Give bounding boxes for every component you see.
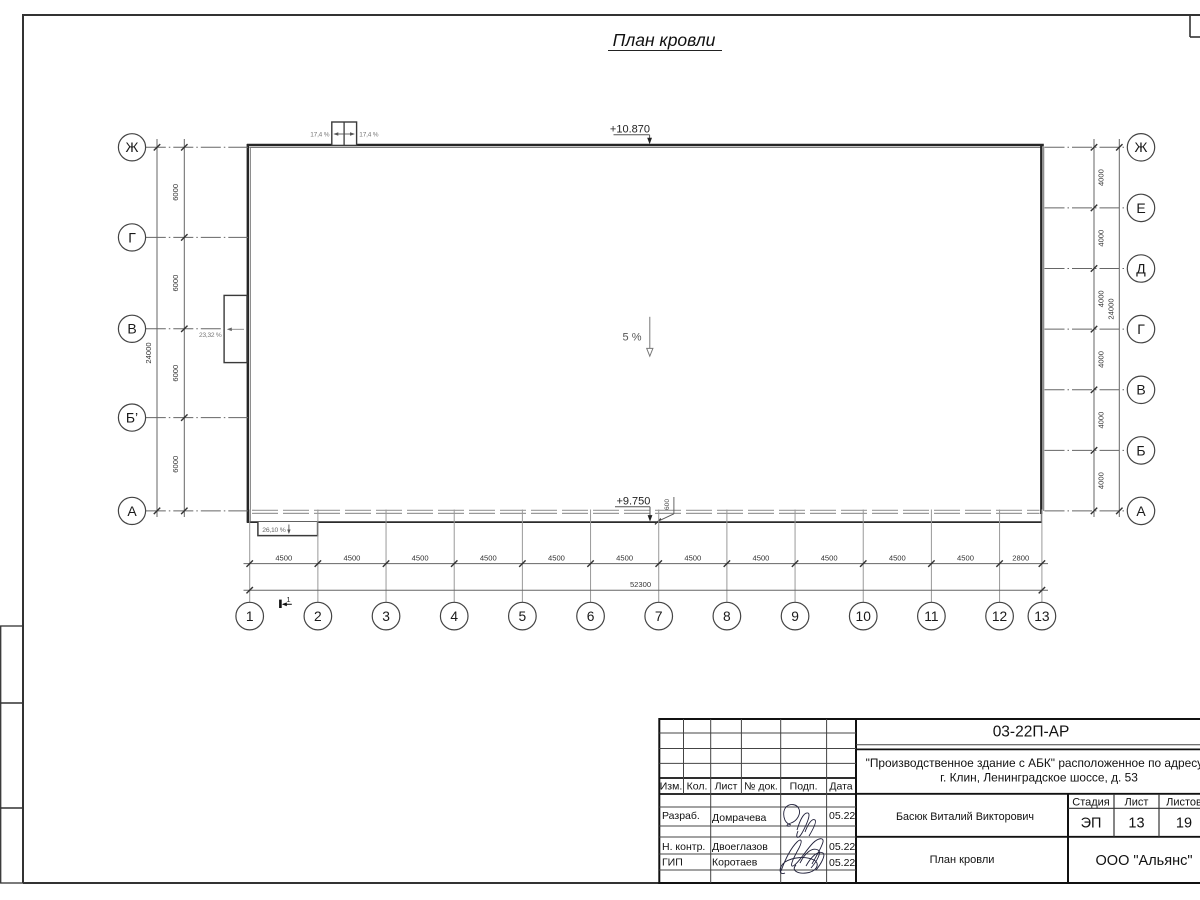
svg-text:17,4 %: 17,4 % — [359, 131, 378, 138]
svg-text:А: А — [1136, 503, 1146, 519]
svg-text:23,32 %: 23,32 % — [199, 332, 222, 339]
svg-text:6: 6 — [587, 609, 595, 624]
svg-text:4000: 4000 — [1097, 230, 1106, 247]
svg-text:4500: 4500 — [821, 554, 838, 563]
svg-text:1: 1 — [286, 595, 290, 604]
svg-text:Коротаев: Коротаев — [712, 857, 758, 869]
svg-text:24000: 24000 — [144, 342, 153, 363]
svg-text:3: 3 — [382, 609, 390, 624]
svg-text:5 %: 5 % — [623, 331, 642, 343]
svg-text:Г: Г — [128, 229, 136, 245]
svg-text:1: 1 — [246, 609, 254, 624]
svg-text:Домрачева: Домрачева — [712, 812, 767, 824]
svg-text:Разраб.: Разраб. — [662, 810, 700, 822]
svg-text:4000: 4000 — [1097, 412, 1106, 429]
svg-text:17,4 %: 17,4 % — [310, 131, 329, 138]
svg-text:Д: Д — [1136, 260, 1146, 276]
svg-text:5: 5 — [519, 609, 527, 624]
svg-text:ООО "Альянс": ООО "Альянс" — [1096, 853, 1193, 869]
svg-text:Изм.: Изм. — [660, 780, 683, 792]
svg-text:А: А — [127, 503, 137, 519]
svg-text:Б’: Б’ — [126, 410, 138, 426]
svg-text:6000: 6000 — [171, 275, 180, 292]
svg-text:4000: 4000 — [1097, 351, 1106, 368]
svg-text:4500: 4500 — [548, 554, 565, 563]
svg-text:4500: 4500 — [344, 554, 361, 563]
svg-text:6000: 6000 — [171, 184, 180, 201]
svg-text:+10.870: +10.870 — [610, 124, 650, 136]
svg-text:Подп.: Подп. — [790, 780, 818, 792]
svg-text:Е: Е — [1136, 200, 1145, 216]
svg-text:12: 12 — [992, 609, 1007, 624]
svg-text:Листов: Листов — [1166, 796, 1200, 808]
svg-text:13: 13 — [1034, 609, 1050, 624]
svg-text:19: 19 — [1176, 816, 1192, 832]
svg-text:ГИП: ГИП — [662, 857, 683, 869]
svg-text:2800: 2800 — [1012, 554, 1029, 563]
svg-text:24000: 24000 — [1106, 298, 1115, 319]
svg-text:05.22: 05.22 — [829, 841, 855, 853]
svg-text:05.22: 05.22 — [829, 857, 855, 869]
svg-text:г. Клин, Ленинградское шоссе,: г. Клин, Ленинградское шоссе, д. 53 — [940, 770, 1138, 784]
svg-text:В: В — [1136, 382, 1145, 398]
svg-text:№ док.: № док. — [744, 780, 778, 792]
svg-text:10: 10 — [856, 609, 872, 624]
svg-text:6000: 6000 — [171, 456, 180, 473]
svg-text:Стадия: Стадия — [1072, 796, 1110, 808]
svg-text:4000: 4000 — [1097, 169, 1106, 186]
svg-text:План кровли: План кровли — [613, 30, 716, 50]
svg-text:8: 8 — [723, 609, 731, 624]
svg-text:4500: 4500 — [957, 554, 974, 563]
svg-text:ЭП: ЭП — [1081, 816, 1102, 832]
svg-text:4500: 4500 — [889, 554, 906, 563]
svg-text:Ж: Ж — [1135, 139, 1148, 155]
svg-text:4500: 4500 — [412, 554, 429, 563]
svg-text:Басюк Виталий Викторович: Басюк Виталий Викторович — [896, 811, 1034, 823]
svg-text:4500: 4500 — [616, 554, 633, 563]
svg-text:4500: 4500 — [275, 554, 292, 563]
svg-text:600: 600 — [664, 499, 671, 510]
svg-text:7: 7 — [655, 609, 663, 624]
svg-text:4: 4 — [450, 609, 458, 624]
svg-text:Ж: Ж — [126, 139, 139, 155]
svg-text:План кровли: План кровли — [930, 854, 995, 866]
svg-text:03-22П-АР: 03-22П-АР — [993, 723, 1070, 740]
svg-text:4500: 4500 — [480, 554, 497, 563]
svg-text:05.22: 05.22 — [829, 810, 855, 822]
svg-text:9: 9 — [791, 609, 799, 624]
svg-text:26,10 %: 26,10 % — [262, 527, 285, 534]
svg-text:В: В — [127, 321, 136, 337]
svg-text:Дата: Дата — [829, 780, 852, 792]
svg-text:4500: 4500 — [753, 554, 770, 563]
svg-text:4000: 4000 — [1097, 472, 1106, 489]
svg-text:2: 2 — [314, 609, 322, 624]
svg-text:Б: Б — [1136, 442, 1145, 458]
svg-text:6000: 6000 — [171, 365, 180, 382]
svg-text:Двоеглазов: Двоеглазов — [712, 841, 768, 853]
svg-text:Кол.: Кол. — [687, 780, 708, 792]
svg-text:4500: 4500 — [684, 554, 701, 563]
svg-text:Н. контр.: Н. контр. — [662, 841, 705, 853]
svg-text:13: 13 — [1128, 816, 1144, 832]
svg-text:52300: 52300 — [630, 580, 651, 589]
svg-text:Г: Г — [1137, 321, 1145, 337]
svg-text:11: 11 — [924, 609, 938, 624]
svg-text:"Производственное здание с АБК: "Производственное здание с АБК" располож… — [866, 756, 1200, 770]
svg-text:+9.750: +9.750 — [616, 496, 650, 508]
svg-text:Лист: Лист — [715, 780, 738, 792]
svg-text:Лист: Лист — [1125, 796, 1149, 808]
svg-text:4000: 4000 — [1097, 290, 1106, 307]
